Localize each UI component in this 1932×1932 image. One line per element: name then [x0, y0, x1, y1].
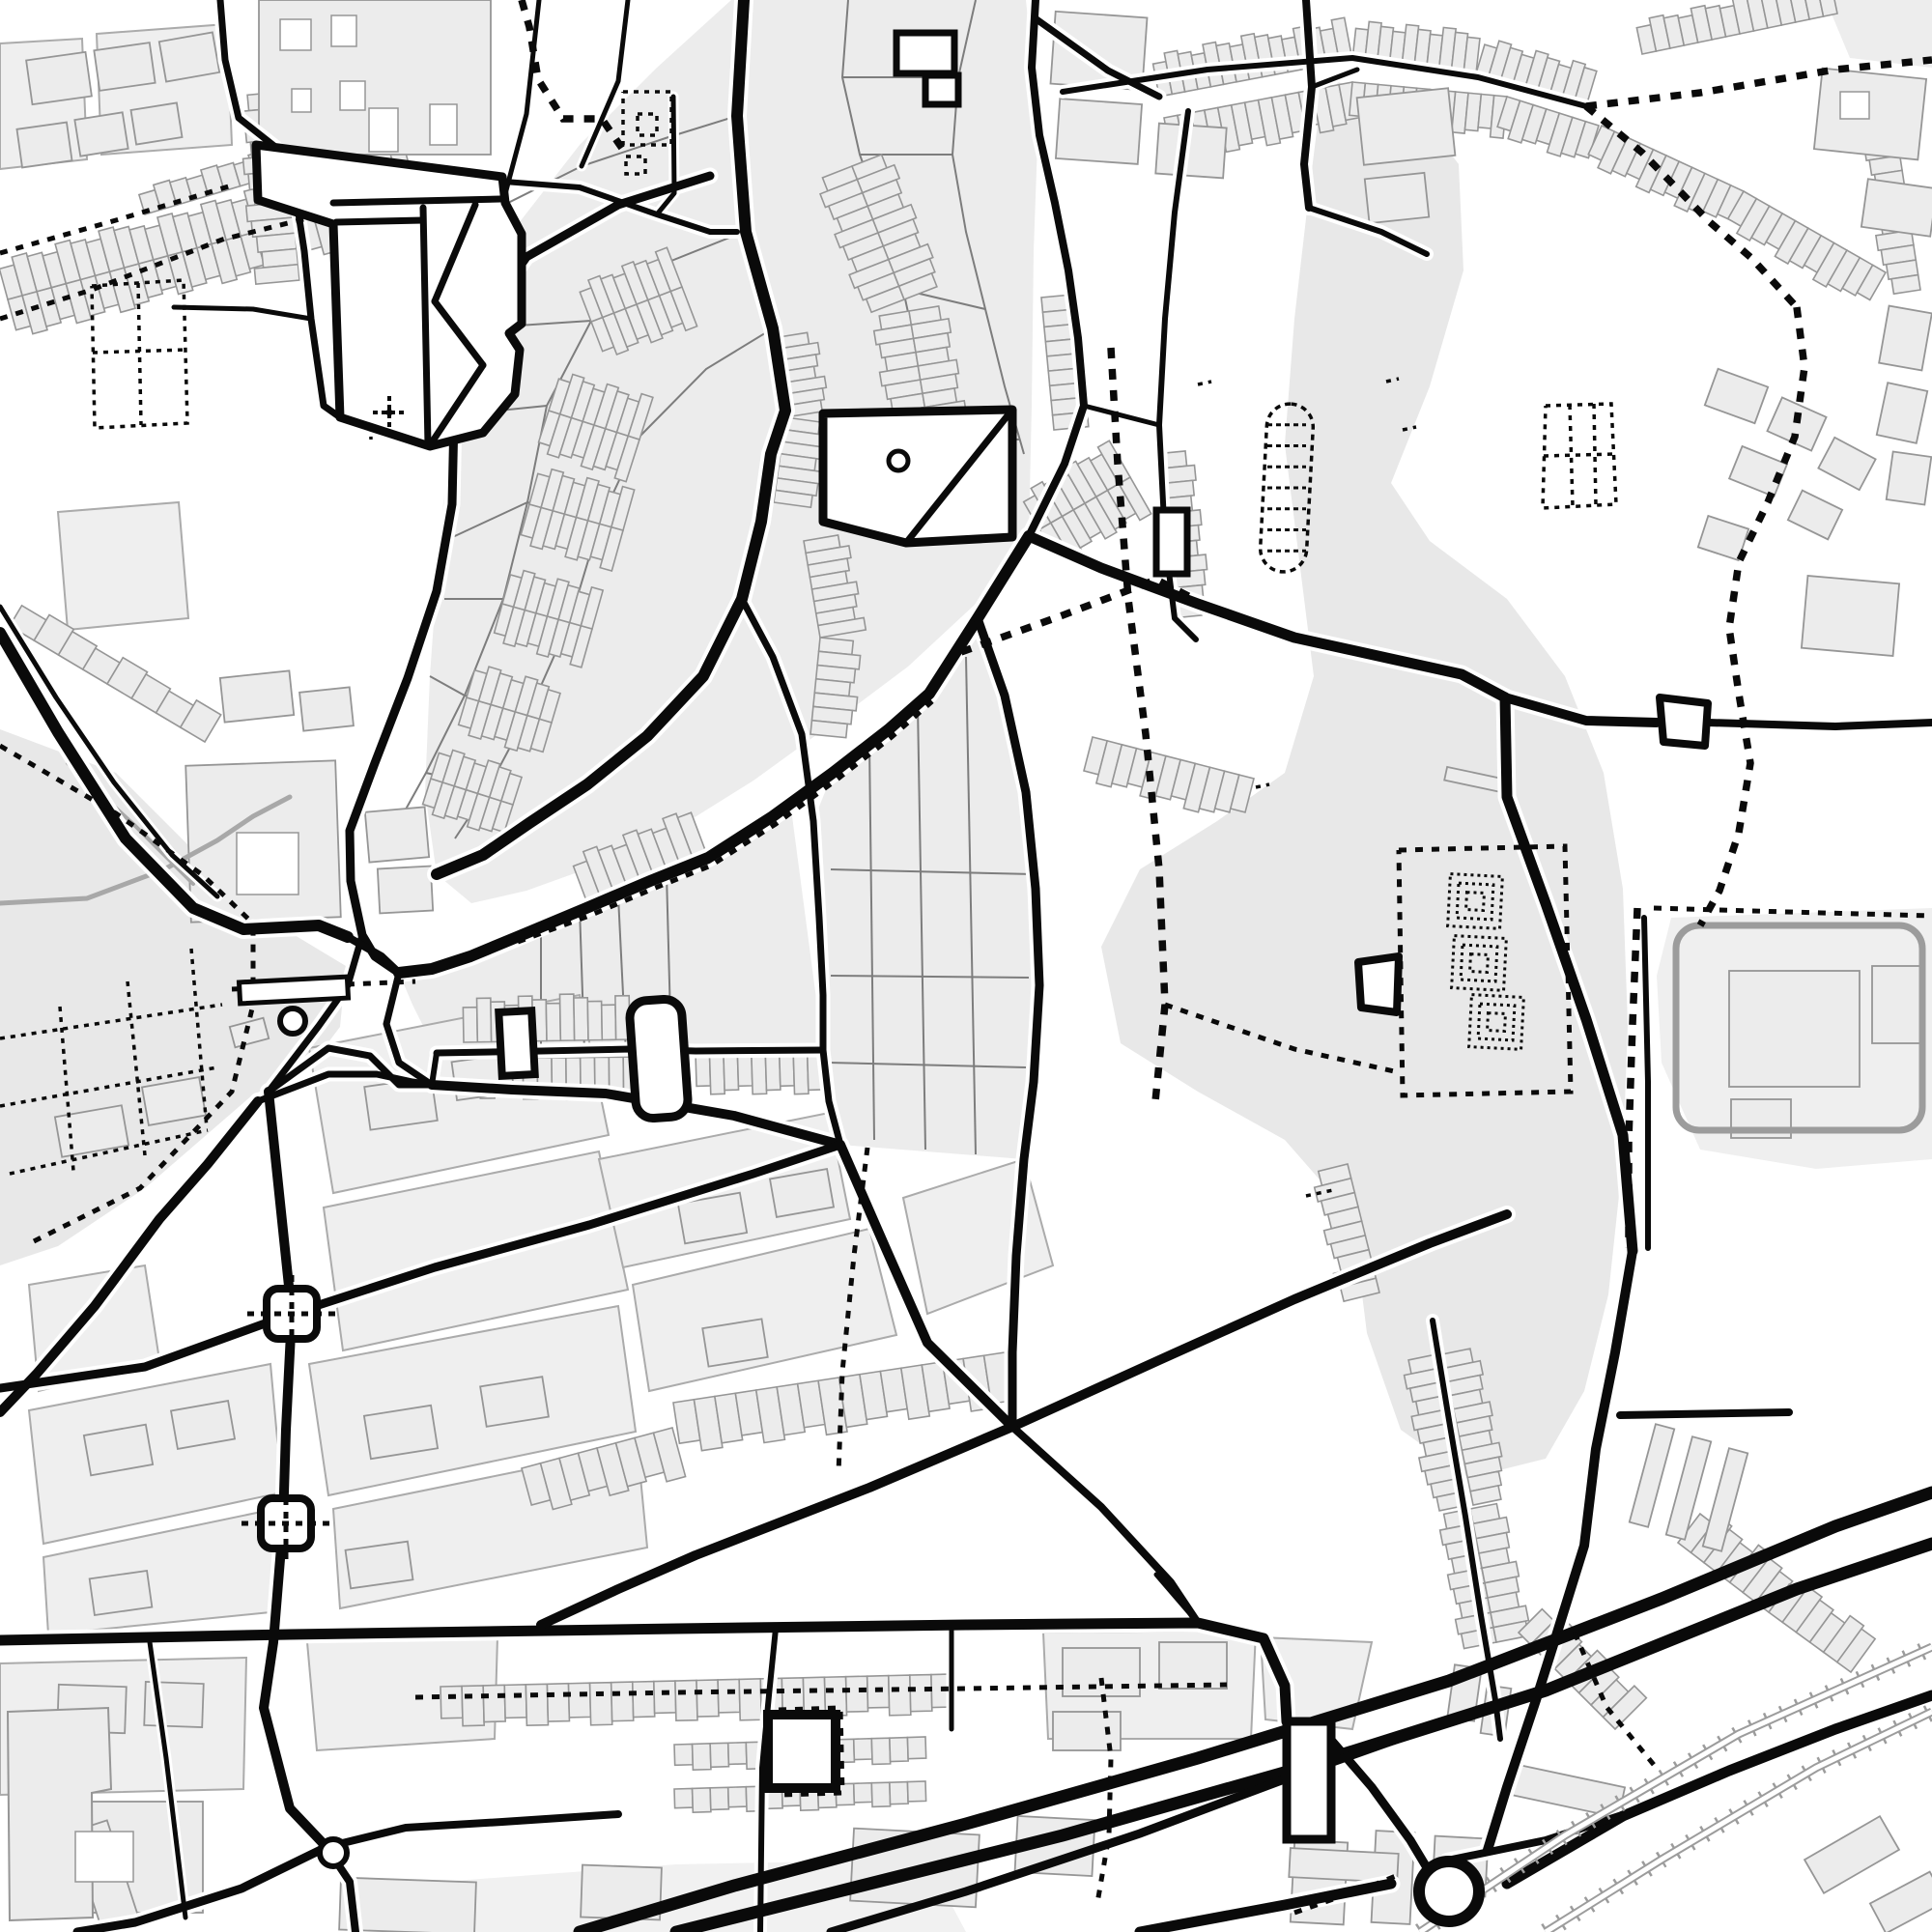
landmark-building: [240, 977, 349, 1004]
building: [1357, 88, 1456, 165]
terrace-building: [611, 1682, 634, 1721]
building: [1887, 451, 1932, 504]
landmark-building: [896, 33, 954, 73]
terrace-building: [674, 1788, 693, 1807]
pond: [629, 998, 689, 1119]
courtyard: [430, 104, 457, 145]
building: [1703, 1448, 1747, 1551]
terrace-building: [547, 1684, 569, 1721]
terrace-building: [569, 1683, 591, 1718]
terrace-building: [440, 1686, 463, 1718]
roundabout: [320, 1839, 347, 1866]
parcel: [903, 1159, 1053, 1314]
road: [1620, 1412, 1789, 1415]
building: [159, 32, 219, 81]
courtyard: [280, 19, 311, 50]
terrace-building: [609, 1057, 623, 1089]
terrace-building: [602, 1005, 616, 1039]
church-dot: [386, 410, 393, 416]
landmark-building: [768, 1715, 836, 1788]
building: [1879, 306, 1932, 371]
terrace-building: [854, 1783, 872, 1803]
terrace-building: [910, 1675, 932, 1712]
roundabout: [280, 1009, 305, 1034]
parcel: [58, 502, 188, 630]
building: [1804, 1816, 1899, 1893]
terrace-building: [718, 1679, 740, 1713]
terrace-building: [574, 998, 588, 1040]
building: [130, 102, 182, 144]
courtyard: [292, 89, 311, 112]
building: [378, 867, 433, 914]
road: [1084, 406, 1159, 425]
building: [74, 112, 128, 156]
building: [1767, 397, 1826, 450]
building: [480, 1377, 549, 1427]
roundabout: [889, 451, 908, 470]
landmark-wall: [336, 220, 423, 222]
terrace-building: [871, 1738, 890, 1764]
building: [1365, 173, 1429, 223]
building: [1818, 438, 1875, 490]
terrace-building: [728, 1787, 747, 1807]
footpath: [1570, 405, 1573, 506]
terrace-building: [810, 721, 847, 738]
terrace-building: [710, 1787, 728, 1809]
building: [26, 52, 92, 104]
building: [299, 687, 354, 730]
terrace-building: [890, 1782, 908, 1804]
landmark-wall: [423, 208, 428, 444]
courtyard: [1840, 92, 1869, 119]
terrace-building: [693, 1788, 711, 1812]
footpath: [138, 283, 141, 425]
footpath: [1544, 454, 1614, 456]
terrace-building: [654, 1681, 676, 1713]
top-right-corner: [1826, 0, 1932, 68]
terrace-building: [559, 994, 574, 1040]
terrace-building: [675, 1681, 697, 1721]
terrace-building: [504, 1685, 526, 1719]
building: [364, 1406, 438, 1459]
footpath: [93, 350, 185, 353]
terrace-building: [590, 1683, 612, 1725]
landmark-building: [498, 1010, 534, 1076]
courtyard: [340, 81, 365, 110]
building: [1729, 971, 1860, 1087]
building: [365, 807, 429, 862]
building: [1788, 491, 1842, 540]
landmark-building: [256, 145, 522, 446]
terrace-building: [674, 1744, 693, 1765]
footpath: [1198, 382, 1211, 384]
landmark-building: [1287, 1721, 1331, 1839]
building: [1872, 966, 1920, 1043]
landmark-building: [925, 75, 958, 104]
terrace-building: [254, 265, 299, 284]
landmark-building: [823, 410, 1012, 543]
terrace-building: [696, 1680, 719, 1717]
terrace-building: [846, 1676, 868, 1712]
terrace-building: [633, 1682, 655, 1718]
city-map[interactable]: [0, 0, 1932, 1932]
terrace-building: [546, 1004, 560, 1041]
terrace-building: [871, 1782, 890, 1806]
courtyard: [369, 108, 398, 152]
terrace-building: [526, 1684, 548, 1725]
terrace-building: [462, 1686, 484, 1726]
road: [1140, 1884, 1391, 1932]
building: [1729, 446, 1787, 497]
map-canvas[interactable]: [0, 0, 1932, 1932]
terrace-building: [1891, 275, 1920, 295]
terrace-building: [907, 1781, 925, 1802]
terrace-building: [477, 998, 492, 1042]
building: [1870, 1872, 1932, 1932]
building: [90, 1571, 153, 1615]
terrace-building: [693, 1744, 711, 1770]
terrace-building: [587, 1001, 602, 1039]
building: [1877, 383, 1928, 443]
terrace-building: [728, 1743, 747, 1765]
building: [1705, 369, 1768, 423]
building: [346, 1542, 413, 1589]
building: [16, 123, 71, 168]
courtyard: [75, 1832, 133, 1882]
courtyard: [331, 15, 356, 46]
building: [1159, 1642, 1227, 1689]
building: [220, 670, 294, 722]
terrace-building: [889, 1675, 911, 1716]
landmark-building: [1358, 956, 1399, 1012]
terrace-building: [854, 1739, 872, 1760]
building: [94, 43, 155, 91]
building: [1861, 179, 1932, 237]
landmark-building: [1660, 697, 1708, 746]
terrace-building: [890, 1738, 908, 1762]
courtyard: [237, 833, 298, 895]
landmark-building: [1156, 510, 1187, 574]
building: [702, 1319, 767, 1366]
terrace-building: [907, 1737, 925, 1759]
terrace-building: [463, 1008, 477, 1042]
building: [1814, 69, 1926, 160]
terrace-building: [709, 1052, 724, 1094]
terrace-building: [483, 1685, 505, 1721]
terrace-building: [710, 1743, 728, 1767]
building: [1802, 576, 1899, 656]
terrace-building: [739, 1679, 761, 1720]
roundabout: [1419, 1861, 1479, 1921]
footpath: [1594, 404, 1596, 505]
building: [1630, 1424, 1674, 1527]
building: [1056, 99, 1142, 164]
